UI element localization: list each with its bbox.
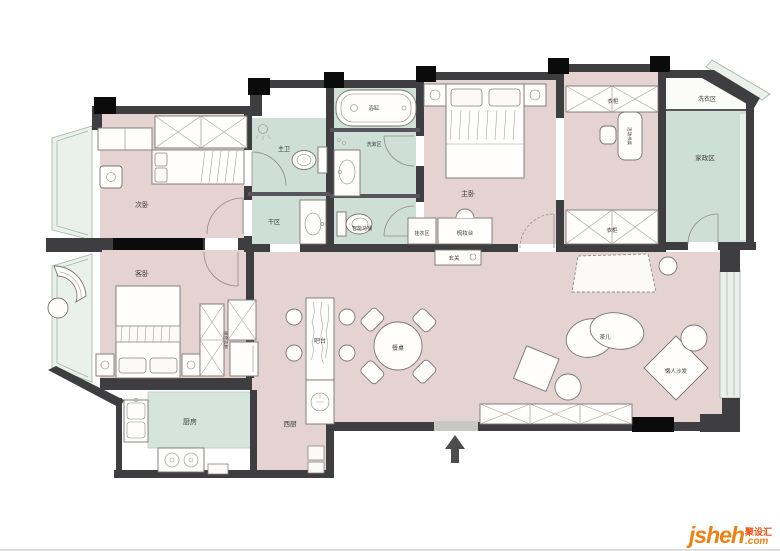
label-wash-area: 洗漱区: [366, 141, 381, 148]
bar-stool-4: [339, 345, 355, 361]
label-kitchen: 厨房: [183, 417, 197, 426]
label-entry-hall: 玄关: [448, 254, 460, 262]
toilet2-tank: [337, 212, 346, 236]
floor-plan-page: 次卧 主卫 干区 浴缸 洗漱区 智能马桶 主卧 衣柜 衣柜 活动书桌 洗衣区 家…: [0, 0, 780, 551]
logo-tld-text: .com: [745, 537, 768, 547]
label-utility: 家政区: [695, 153, 715, 162]
combo-wardrobe-door: [230, 342, 258, 376]
label-lazy-sofa: 懒人沙发: [665, 367, 688, 375]
label-combo-wardrobe: 组合衣柜: [222, 331, 229, 349]
master-nightstand-right: [524, 84, 546, 106]
guest-nightstand-right: [182, 354, 200, 376]
west-kitchen-cabinet2: [308, 462, 324, 473]
guest-pillow1: [119, 358, 146, 373]
label-wardrobe-bottom: 衣柜: [606, 226, 618, 234]
entry-door-gap: [434, 421, 478, 431]
living-balcony-window: [720, 270, 740, 398]
master-pillow2: [489, 89, 520, 106]
pouf-2: [681, 325, 707, 351]
pouf-1: [555, 374, 581, 400]
wash-basin-counter: [334, 150, 360, 196]
label-dressing-table: 梳妆台: [457, 229, 474, 237]
room-utility: [666, 110, 746, 242]
entry-arrow: [445, 435, 465, 463]
toilet1-bowl: [292, 151, 316, 170]
west-kitchen-cabinet1: [308, 446, 324, 460]
kitchen-small-appliance: [208, 464, 228, 474]
projection-sofa: [572, 254, 656, 292]
kitchen-sink-unit: [124, 400, 148, 442]
master-nightstand-left: [424, 84, 446, 106]
label-guest-bedroom: 客卧: [135, 269, 149, 278]
label-hanging-zone: 挂衣区: [414, 230, 429, 237]
bedroom2-nightstand: [100, 166, 122, 188]
label-bathtub: 浴缸: [368, 104, 380, 112]
guest-bed-runner: [116, 326, 180, 342]
guest-nightstand-left: [96, 354, 114, 376]
low-storage-cabinet: [480, 404, 632, 424]
label-dining-table: 餐桌: [392, 344, 404, 352]
label-master-bedroom: 主卧: [461, 189, 475, 198]
dry-area-basin-counter: [300, 200, 326, 244]
label-movable-desk: 活动书桌: [626, 127, 633, 145]
bar-stool-3: [286, 345, 302, 361]
label-bedroom2: 次卧: [135, 200, 149, 209]
label-tea-table: 茶几: [599, 333, 611, 341]
kitchen-floor: [148, 392, 252, 448]
desk-chair: [600, 126, 616, 144]
bedroom2-pillow2: [155, 168, 167, 182]
label-dry-area: 干区: [268, 219, 280, 226]
utility-window-strip: [740, 114, 746, 240]
label-laundry: 洗衣区: [698, 95, 716, 103]
guest-pillow2: [150, 358, 177, 373]
label-west-kitchen: 西厨: [284, 420, 298, 428]
label-bar-counter: 吧台: [314, 337, 326, 345]
lounge-ottoman: [48, 298, 68, 318]
logo-text: jsheh: [689, 524, 744, 547]
jsheh-logo: jsheh 聚设汇 .com: [689, 524, 772, 547]
side-stool: [659, 257, 677, 275]
label-wardrobe-top: 衣柜: [607, 97, 619, 105]
label-master-bath: 主卫: [278, 145, 290, 153]
toilet1-tank: [318, 147, 327, 173]
floor-plan-drawing: 次卧 主卫 干区 浴缸 洗漱区 智能马桶 主卧 衣柜 衣柜 活动书桌 洗衣区 家…: [0, 0, 780, 551]
master-pillow1: [451, 89, 482, 106]
bar-stool-2: [339, 309, 355, 325]
bay-window-top: [52, 126, 92, 240]
bar-stool-1: [286, 309, 302, 325]
label-smart-toilet: 智能马桶: [352, 225, 372, 232]
bedroom2-pillow1: [155, 153, 167, 166]
